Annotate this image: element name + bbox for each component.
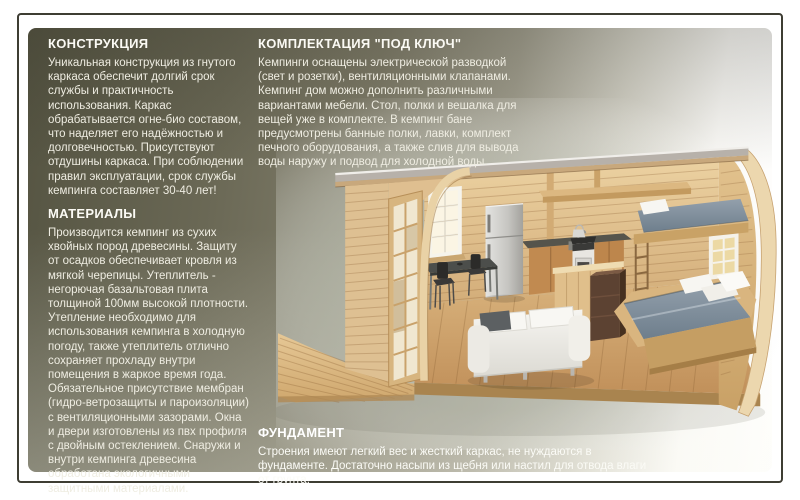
materials-body: Производится кемпинг из сухих хвойных по…: [48, 226, 250, 496]
construction-title: КОНСТРУКЦИЯ: [48, 36, 248, 51]
section-construction: КОНСТРУКЦИЯ Уникальная конструкция из гн…: [48, 36, 248, 198]
turnkey-body: Кемпинги оснащены электрической разводко…: [258, 56, 532, 170]
section-materials: МАТЕРИАЛЫ Производится кемпинг из сухих …: [48, 206, 250, 496]
brochure-page: КОНСТРУКЦИЯ Уникальная конструкция из гн…: [0, 0, 800, 500]
foundation-title: ФУНДАМЕНТ: [258, 425, 658, 440]
sofa: [468, 307, 595, 390]
foundation-body: Строения имеют легкий вес и жесткий карк…: [258, 445, 658, 488]
turnkey-title: КОМПЛЕКТАЦИЯ "ПОД КЛЮЧ": [258, 36, 532, 51]
section-foundation: ФУНДАМЕНТ Строения имеют легкий вес и же…: [258, 425, 658, 488]
construction-body: Уникальная конструкция из гнутого каркас…: [48, 56, 248, 198]
glazed-door: [389, 191, 423, 387]
section-turnkey: КОМПЛЕКТАЦИЯ "ПОД КЛЮЧ" Кемпинги оснащен…: [258, 36, 532, 170]
materials-title: МАТЕРИАЛЫ: [48, 206, 250, 221]
